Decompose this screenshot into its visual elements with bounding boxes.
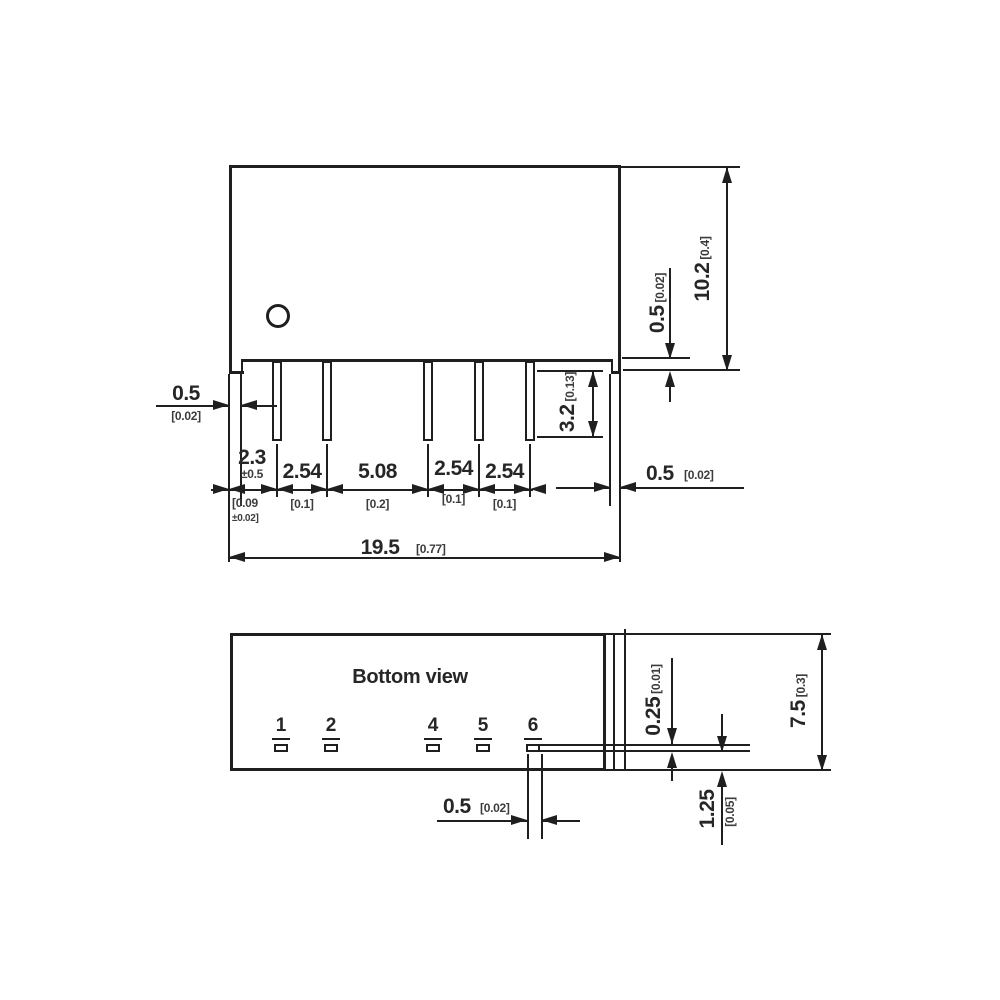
dim-pin1-offset-inch: [0.09 <box>232 497 258 509</box>
dim-pitch-4-5-mm: 2.54 <box>428 458 479 479</box>
dim-depth-mm: 7.5 <box>788 700 809 728</box>
arrowhead-right <box>511 815 527 825</box>
arrowhead-up <box>665 371 675 387</box>
body-right-edge <box>618 165 621 374</box>
arrowhead-up <box>588 371 598 387</box>
dim-body-height-inch: [0.4] <box>699 236 711 259</box>
arrowhead-up <box>722 167 732 183</box>
dim-edge-right-inch: [0.02] <box>684 469 714 481</box>
mechanical-drawing: 0.5 [0.02] 2.3 ±0.5 [0.09 ±0.02] 2.54 [0… <box>0 0 1000 1000</box>
arrowhead-right <box>594 482 610 492</box>
extension-line <box>619 374 621 562</box>
dim-pad-thickness-mm: 0.25 <box>643 697 664 736</box>
dim-edge-left-inch: [0.02] <box>161 410 211 422</box>
extension-line <box>606 633 831 635</box>
pin-pad-1 <box>274 744 288 752</box>
pin-pad-5 <box>476 744 490 752</box>
pin-label-2: 2 <box>322 716 340 740</box>
dim-standoff-inch: [0.02] <box>654 273 666 303</box>
dim-pin1-offset-inch-tol: ±0.02] <box>232 514 258 524</box>
dim-pitch-1-2-inch: [0.1] <box>277 498 327 510</box>
dim-body-height-mm: 10.2 <box>692 263 713 302</box>
dim-pad-width-inch: [0.02] <box>480 802 510 814</box>
pin-label-4: 4 <box>424 716 442 740</box>
arrowhead-up <box>817 634 827 650</box>
arrowhead-right <box>514 484 530 494</box>
dim-edge-left-mm: 0.5 <box>161 383 211 404</box>
dim-pitch-5-6-inch: [0.1] <box>479 498 530 510</box>
arrowhead-right <box>213 400 229 410</box>
dim-pitch-2-4-inch: [0.2] <box>327 498 428 510</box>
dim-row-offset-inch-wrap: [0.05] <box>724 777 740 847</box>
dim-pitch-1-2-mm: 2.54 <box>277 461 327 482</box>
pin-5 <box>474 361 484 441</box>
dim-row-offset-inch: [0.05] <box>724 797 736 827</box>
arrowhead-right <box>311 484 327 494</box>
arrowhead-left <box>229 484 245 494</box>
dim-row-offset-mm: 1.25 <box>697 790 718 829</box>
body-left-edge <box>229 165 232 374</box>
pin-4 <box>423 361 433 441</box>
dim-line <box>241 405 277 407</box>
pin1-indicator-circle <box>266 304 290 328</box>
dim-line <box>620 487 744 489</box>
arrowhead-left <box>479 484 495 494</box>
arrowhead-right <box>604 552 620 562</box>
arrowhead-left <box>530 484 546 494</box>
dim-pitch-4-5-inch: [0.1] <box>428 493 479 505</box>
dim-pad-thickness: 0.25 [0.01] <box>643 640 665 760</box>
dim-body-height: 10.2 [0.4] <box>692 199 716 339</box>
dim-row-offset-mm-wrap: 1.25 <box>697 774 719 844</box>
dim-edge-right-mm: 0.5 <box>646 463 674 484</box>
dim-line-standoff-tail <box>669 387 671 402</box>
body-top-edge <box>229 165 621 168</box>
arrowhead-right <box>412 484 428 494</box>
arrowhead-left <box>277 484 293 494</box>
extension-line <box>623 369 740 371</box>
dim-pin-length: 3.2 [0.13] <box>557 342 579 462</box>
pin-1 <box>272 361 282 441</box>
extension-line <box>527 754 529 839</box>
dim-line-depth <box>821 633 823 771</box>
dim-pin1-offset-mm: 2.3 <box>229 447 275 468</box>
dim-line-height <box>726 166 728 371</box>
pin-2 <box>322 361 332 441</box>
pin-label-5: 5 <box>474 716 492 740</box>
arrowhead-right <box>261 484 277 494</box>
dim-standoff-mm: 0.5 <box>647 305 668 333</box>
arrowhead-up <box>667 752 677 768</box>
dim-line <box>541 820 580 822</box>
arrowhead-down <box>588 421 598 437</box>
pin-pad-6 <box>526 744 540 752</box>
dim-depth: 7.5 [0.3] <box>788 641 810 761</box>
pin-label-6: 6 <box>524 716 542 740</box>
dim-pitch-2-4-mm: 5.08 <box>327 461 428 482</box>
arrowhead-right <box>213 484 229 494</box>
dim-pin1-offset-tol: ±0.5 <box>229 468 275 480</box>
dim-line-tail <box>671 768 673 781</box>
extension-line <box>541 754 543 839</box>
arrowhead-left <box>327 484 343 494</box>
pin-label-1: 1 <box>272 716 290 740</box>
dim-overall-length-inch: [0.77] <box>416 543 446 555</box>
arrowhead-down <box>817 755 827 771</box>
dim-depth-inch: [0.3] <box>795 674 807 697</box>
arrowhead-down <box>717 736 727 752</box>
dim-pad-width-mm: 0.5 <box>443 796 471 817</box>
dim-line-overall <box>229 557 620 559</box>
dim-pitch-5-6-mm: 2.54 <box>479 461 530 482</box>
pin-pad-4 <box>426 744 440 752</box>
dim-pin-length-inch: [0.13] <box>564 372 576 402</box>
arrowhead-down <box>667 728 677 744</box>
bottom-view-title: Bottom view <box>320 667 500 687</box>
dim-pad-thickness-inch: [0.01] <box>650 664 662 694</box>
dim-overall-length-mm: 19.5 <box>350 537 410 558</box>
pin-pad-2 <box>324 744 338 752</box>
pin-6 <box>525 361 535 441</box>
dim-standoff: 0.5 [0.02] <box>647 243 669 363</box>
arrowhead-left <box>229 552 245 562</box>
dim-pin-length-mm: 3.2 <box>557 404 578 432</box>
